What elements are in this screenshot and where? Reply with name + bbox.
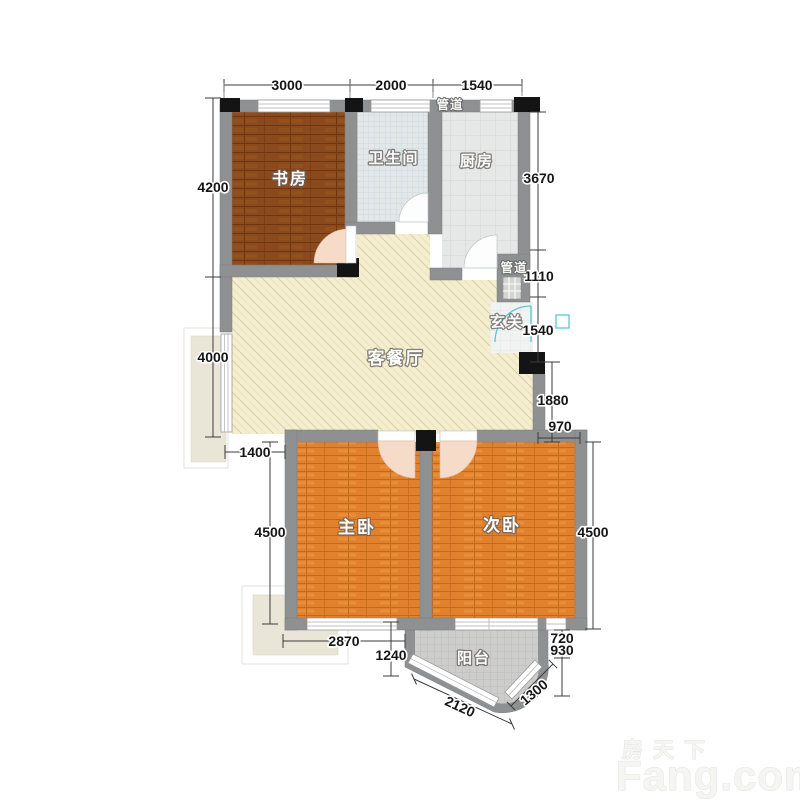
dim-label: 4000 xyxy=(197,349,228,365)
dim-label: 2870 xyxy=(328,633,359,649)
room-label-balcony: 阳台 xyxy=(457,649,491,667)
window xyxy=(258,100,330,112)
dim-label: 1240 xyxy=(375,647,406,663)
dim-label: 1110 xyxy=(524,268,554,284)
dim-label: 2000 xyxy=(375,77,406,93)
duct-label-top: 管道 xyxy=(436,97,463,112)
room-label-kitchen: 厨房 xyxy=(460,152,494,170)
room-label-entry: 玄关 xyxy=(490,313,524,331)
room-label-living: 客餐厅 xyxy=(367,348,425,368)
dim-label: 1540 xyxy=(461,77,492,93)
duct-label-side: 管道 xyxy=(500,260,527,275)
window xyxy=(455,618,538,630)
dim-label: 970 xyxy=(548,418,572,434)
dim-label: 1880 xyxy=(537,392,568,408)
watermark-en: Fang.com xyxy=(616,752,800,799)
watermark: 房天下 Fang.com xyxy=(616,738,800,799)
dim-label: 4200 xyxy=(197,179,228,195)
duct-grate xyxy=(503,277,521,299)
dim-label: 3000 xyxy=(271,77,302,93)
dim-label: 3670 xyxy=(523,170,554,186)
floorplan-drawing: 3000 2000 1540 4200 4000 4500 1400 3670 … xyxy=(0,0,800,800)
dim-label: 4500 xyxy=(254,524,285,540)
dim-label: 930 xyxy=(550,642,574,658)
floorplan-page: 3000 2000 1540 4200 4000 4500 1400 3670 … xyxy=(0,0,800,800)
dim-label: 1540 xyxy=(522,322,553,338)
room-label-second: 次卧 xyxy=(483,515,521,535)
dim-label: 1400 xyxy=(239,444,270,460)
entry-door-symbol xyxy=(556,315,569,328)
second-door-leaf xyxy=(440,431,477,441)
window xyxy=(480,100,512,112)
study-door-leaf xyxy=(346,226,356,263)
room-label-bathroom: 卫生间 xyxy=(368,149,419,167)
dim-label: 4500 xyxy=(577,524,608,540)
room-label-study: 书房 xyxy=(272,169,308,188)
window xyxy=(307,618,397,630)
master-door-leaf xyxy=(378,431,415,441)
room-label-master: 主卧 xyxy=(338,517,376,537)
window xyxy=(371,100,430,112)
